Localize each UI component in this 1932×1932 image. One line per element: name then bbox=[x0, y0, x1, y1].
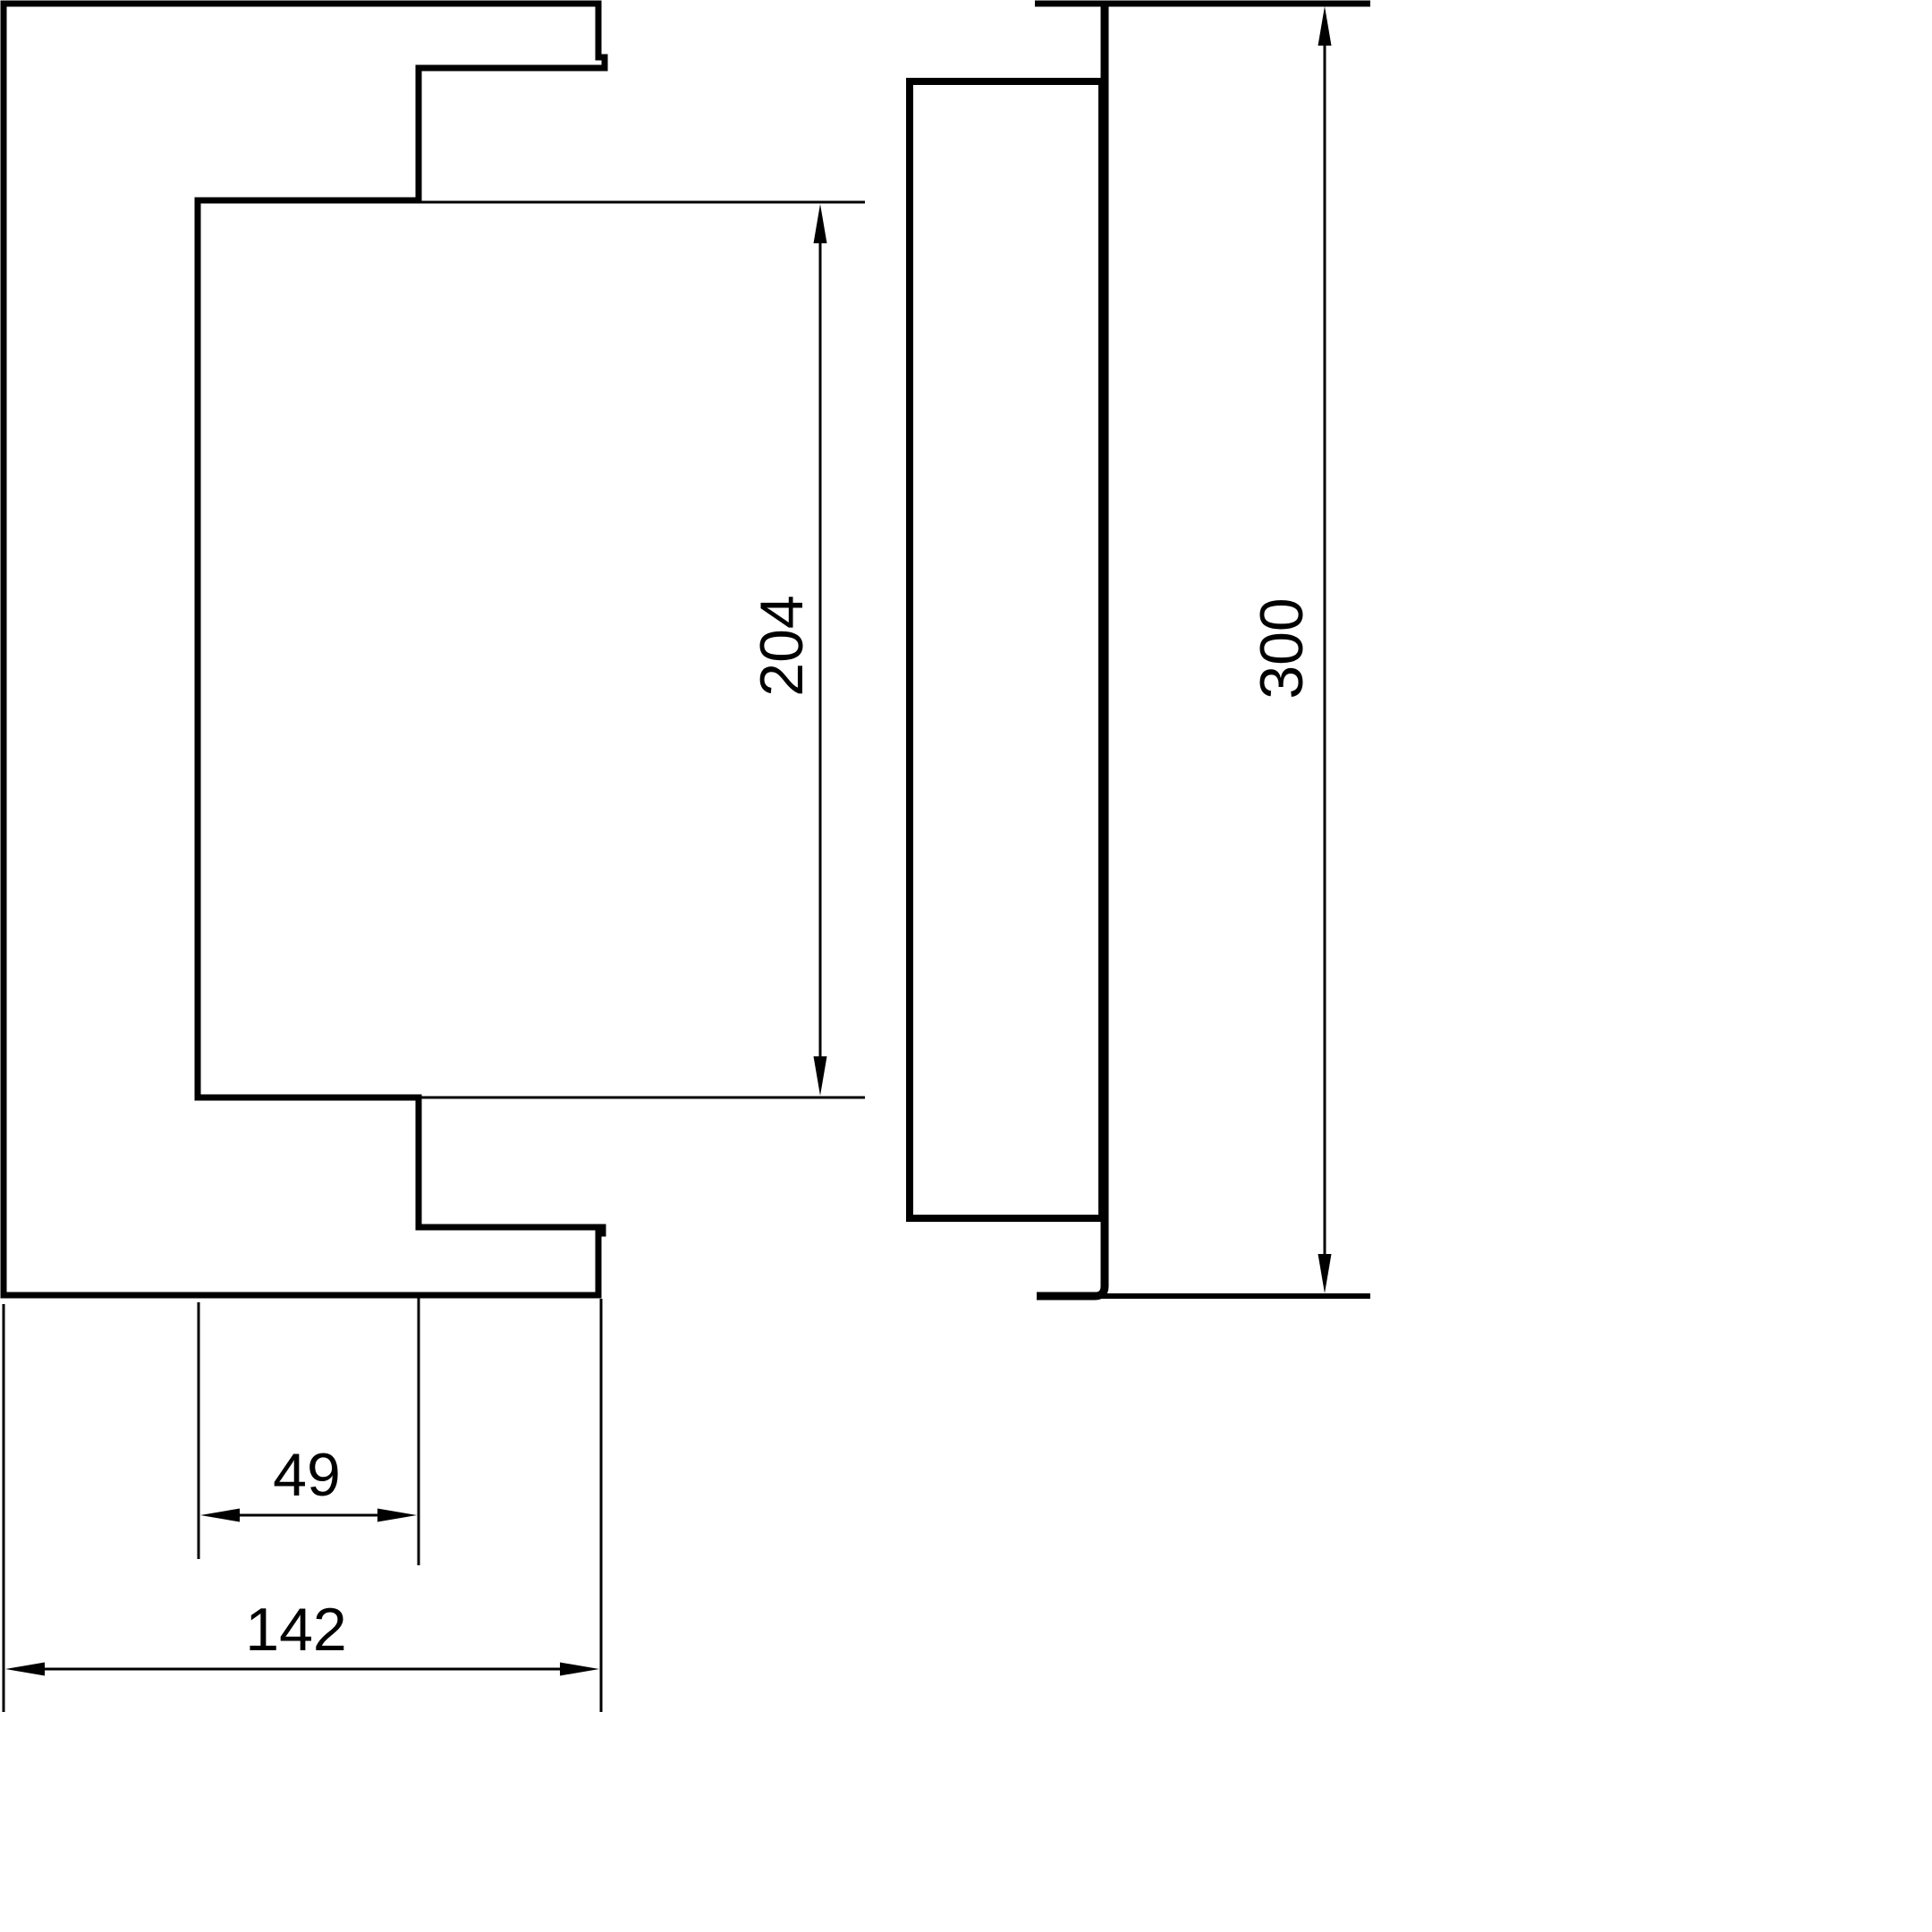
dim-49-label: 49 bbox=[273, 1441, 341, 1509]
dim-49-arrow-right bbox=[377, 1509, 417, 1522]
dim-300-arrow-up bbox=[1318, 6, 1332, 46]
dim-300-arrow-down bbox=[1318, 1254, 1332, 1293]
dim-49-arrow-left bbox=[200, 1509, 240, 1522]
panel-section-shape bbox=[910, 81, 1102, 1218]
frame-profile-shape bbox=[4, 4, 605, 1295]
dim-142-label: 142 bbox=[245, 1596, 346, 1664]
panel-face-line bbox=[1037, 4, 1105, 1296]
dim-142-arrow-right bbox=[560, 1663, 599, 1676]
drawing-canvas: 204 300 49 142 bbox=[0, 0, 1932, 1932]
dim-204-arrow-down bbox=[814, 1056, 827, 1096]
technical-drawing: 204 300 49 142 bbox=[0, 0, 1932, 1932]
dim-142-arrow-left bbox=[5, 1663, 45, 1676]
dim-204-label: 204 bbox=[748, 595, 816, 696]
dim-204-arrow-up bbox=[814, 204, 827, 243]
dim-300-label: 300 bbox=[1248, 597, 1316, 699]
